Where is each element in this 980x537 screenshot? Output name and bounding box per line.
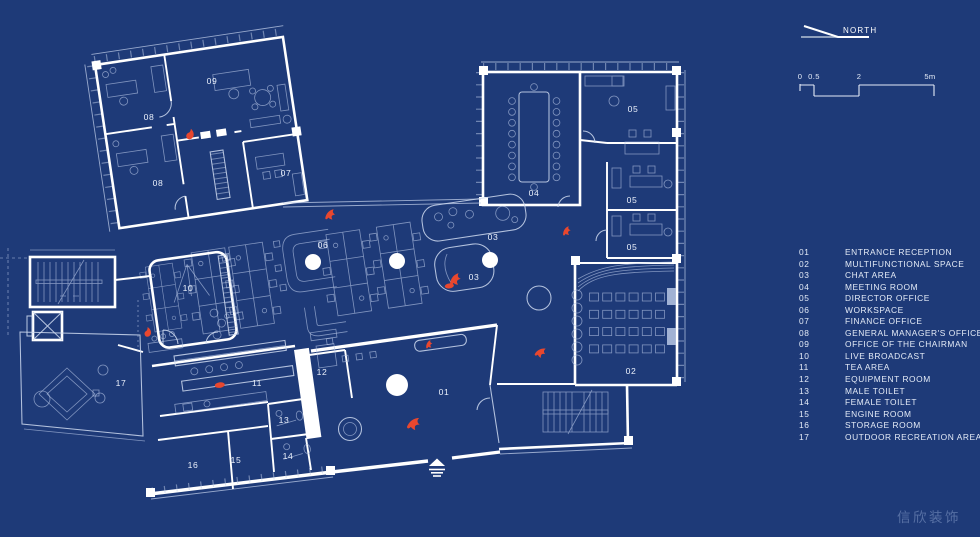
room-label-07: 07 (281, 168, 292, 178)
legend-number: 08 (799, 328, 845, 340)
legend-number: 04 (799, 282, 845, 294)
legend-name: MALE TOILET (845, 386, 905, 398)
column (386, 374, 408, 396)
legend-number: 02 (799, 259, 845, 271)
legend-row-12: 12EQUIPMENT ROOM (799, 374, 980, 386)
legend-row-14: 14FEMALE TOILET (799, 397, 980, 409)
scale-tick-label: 0 (798, 72, 803, 81)
legend-number: 09 (799, 339, 845, 351)
legend-row-13: 13MALE TOILET (799, 386, 980, 398)
legend-row-16: 16STORAGE ROOM (799, 420, 980, 432)
legend-row-04: 04MEETING ROOM (799, 282, 980, 294)
legend-name: WORKSPACE (845, 305, 904, 317)
scale-tick-label: 0.5 (808, 72, 820, 81)
legend-name: MEETING ROOM (845, 282, 918, 294)
legend-row-03: 03CHAT AREA (799, 270, 980, 282)
room-label-17: 17 (116, 378, 127, 388)
room-label-14: 14 (283, 451, 294, 461)
legend-name: STORAGE ROOM (845, 420, 921, 432)
legend-row-06: 06WORKSPACE (799, 305, 980, 317)
blueprint-canvas: 0102030304050505060708080910111213141516… (0, 0, 980, 537)
legend-row-11: 11TEA AREA (799, 362, 980, 374)
legend-number: 13 (799, 386, 845, 398)
legend-number: 17 (799, 432, 845, 444)
legend-row-17: 17OUTDOOR RECREATION AREA (799, 432, 980, 444)
legend-row-15: 15ENGINE ROOM (799, 409, 980, 421)
scale-tick-label: 2 (857, 72, 862, 81)
legend-number: 12 (799, 374, 845, 386)
room-label-08: 08 (144, 112, 155, 122)
legend-number: 03 (799, 270, 845, 282)
room-label-03: 03 (488, 232, 499, 242)
legend-name: OUTDOOR RECREATION AREA (845, 432, 980, 444)
room-label-13: 13 (279, 415, 290, 425)
legend-number: 07 (799, 316, 845, 328)
legend-name: EQUIPMENT ROOM (845, 374, 931, 386)
room-label-09: 09 (207, 76, 218, 86)
legend-row-07: 07FINANCE OFFICE (799, 316, 980, 328)
watermark: 信欣装饰 (897, 506, 961, 526)
legend-name: ENGINE ROOM (845, 409, 912, 421)
legend-name: LIVE BROADCAST (845, 351, 925, 363)
legend: 01ENTRANCE RECEPTION02MULTIFUNCTIONAL SP… (799, 247, 980, 443)
legend-number: 14 (799, 397, 845, 409)
legend-number: 11 (799, 362, 845, 374)
legend-number: 05 (799, 293, 845, 305)
room-label-05: 05 (627, 195, 638, 205)
legend-row-02: 02MULTIFUNCTIONAL SPACE (799, 259, 980, 271)
room-label-11: 11 (252, 378, 262, 388)
north-label: NORTH (843, 26, 877, 35)
legend-row-01: 01ENTRANCE RECEPTION (799, 247, 980, 259)
room-label-12: 12 (317, 367, 328, 377)
legend-name: CHAT AREA (845, 270, 897, 282)
legend-number: 15 (799, 409, 845, 421)
legend-name: DIRECTOR OFFICE (845, 293, 930, 305)
room-label-05: 05 (628, 104, 639, 114)
legend-row-09: 09OFFICE OF THE CHAIRMAN (799, 339, 980, 351)
scale-tick-label: 5m (924, 72, 935, 81)
room-label-01: 01 (439, 387, 450, 397)
legend-number: 06 (799, 305, 845, 317)
legend-name: MULTIFUNCTIONAL SPACE (845, 259, 964, 271)
legend-name: FEMALE TOILET (845, 397, 917, 409)
legend-number: 01 (799, 247, 845, 259)
legend-name: FINANCE OFFICE (845, 316, 923, 328)
room-label-10: 10 (183, 283, 194, 293)
room-label-16: 16 (188, 460, 199, 470)
column (389, 253, 405, 269)
column (482, 252, 498, 268)
legend-name: ENTRANCE RECEPTION (845, 247, 952, 259)
legend-name: GENERAL MANAGER'S OFFICE (845, 328, 980, 340)
legend-number: 10 (799, 351, 845, 363)
room-label-04: 04 (529, 188, 540, 198)
legend-name: OFFICE OF THE CHAIRMAN (845, 339, 968, 351)
legend-row-10: 10LIVE BROADCAST (799, 351, 980, 363)
legend-name: TEA AREA (845, 362, 890, 374)
room-label-03: 03 (469, 272, 480, 282)
legend-row-08: 08GENERAL MANAGER'S OFFICE (799, 328, 980, 340)
room-label-02: 02 (626, 366, 637, 376)
room-label-06: 06 (318, 240, 329, 250)
room-label-08: 08 (153, 178, 164, 188)
room-label-15: 15 (231, 455, 242, 465)
legend-number: 16 (799, 420, 845, 432)
room-label-05: 05 (627, 242, 638, 252)
column (305, 254, 321, 270)
legend-row-05: 05DIRECTOR OFFICE (799, 293, 980, 305)
